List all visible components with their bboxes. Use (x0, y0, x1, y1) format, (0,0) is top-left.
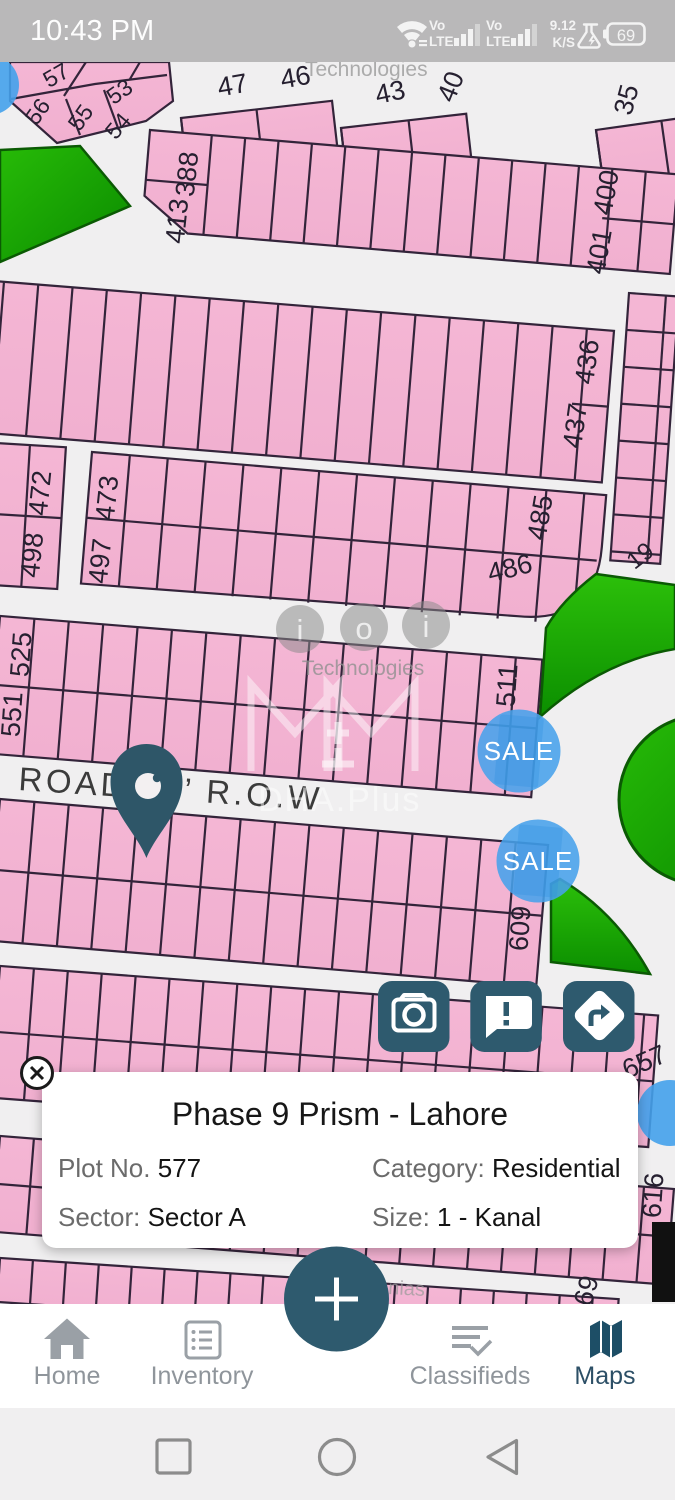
svg-text:SALE: SALE (484, 736, 555, 766)
svg-text:525: 525 (4, 631, 37, 678)
svg-text:436: 436 (569, 337, 605, 386)
svg-text:Technologies: Technologies (302, 657, 425, 680)
svg-text:Home: Home (34, 1362, 101, 1390)
svg-text:i: i (423, 609, 430, 644)
svg-text:551: 551 (0, 691, 29, 738)
svg-text:473: 473 (90, 474, 125, 522)
svg-text:498: 498 (15, 531, 50, 579)
svg-text:497: 497 (83, 537, 118, 585)
svg-text:616: 616 (636, 1172, 669, 1219)
svg-text:Vo: Vo (486, 18, 502, 33)
svg-text:Classifieds: Classifieds (410, 1362, 531, 1390)
svg-text:i: i (297, 613, 304, 648)
svg-text:472: 472 (23, 469, 58, 517)
svg-text:47: 47 (215, 68, 250, 103)
svg-text:Vo: Vo (429, 18, 445, 33)
svg-text:413: 413 (160, 197, 195, 245)
svg-text:Maps: Maps (574, 1362, 635, 1390)
svg-text:69: 69 (617, 27, 635, 45)
svg-text:K/S: K/S (552, 35, 575, 50)
svg-text:Inventory: Inventory (151, 1362, 254, 1390)
svg-text:388: 388 (170, 150, 205, 198)
svg-text:nias: nias (388, 1277, 426, 1301)
svg-text:511: 511 (491, 663, 524, 708)
svg-text:437: 437 (557, 401, 593, 450)
svg-text:o: o (355, 611, 372, 646)
svg-text:609: 609 (503, 905, 536, 952)
svg-text:LTE: LTE (429, 34, 454, 49)
svg-text:LTE: LTE (486, 34, 511, 49)
svg-text:SALE: SALE (503, 846, 574, 876)
svg-text:DHA.Plus: DHA.Plus (258, 781, 421, 819)
svg-text:9.12: 9.12 (550, 18, 576, 33)
